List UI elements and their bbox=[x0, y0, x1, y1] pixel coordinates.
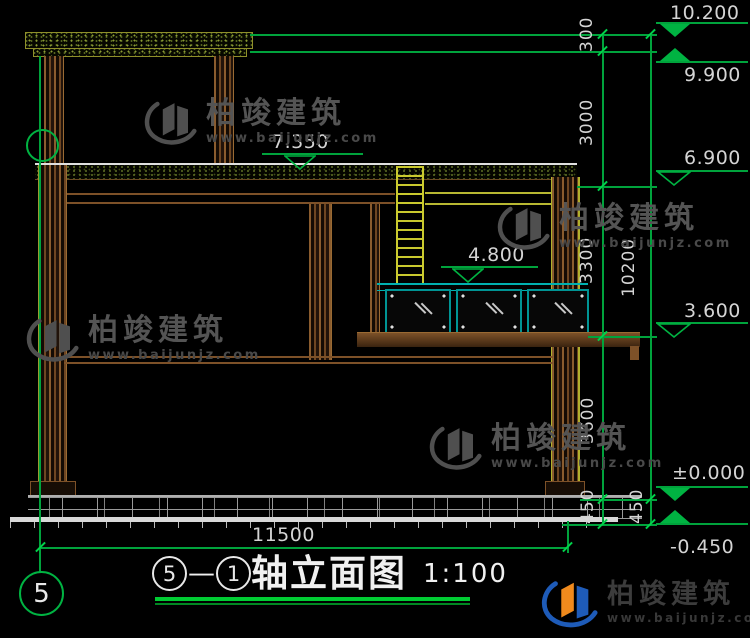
watermark-brand: 柏竣建筑 bbox=[206, 98, 379, 130]
axis-bubble: 5 bbox=[19, 571, 64, 616]
glass-panel bbox=[456, 289, 522, 334]
watermark-logo-icon bbox=[428, 420, 482, 474]
title-axis-end-label: 1 bbox=[227, 562, 240, 586]
title-axis-start-label: 5 bbox=[163, 562, 176, 586]
dim-450-outer: 450 bbox=[627, 488, 647, 524]
watermark-brand: 柏竣建筑 bbox=[559, 203, 732, 235]
elev-10200-line bbox=[656, 22, 748, 24]
elev-9900-line bbox=[656, 61, 748, 63]
roof-beam-line bbox=[64, 193, 395, 195]
axis-bubble-label: 5 bbox=[33, 579, 50, 609]
watermark-logo-icon bbox=[540, 574, 598, 632]
elev-0000-label: ±0.000 bbox=[672, 462, 745, 484]
title-axis-end: 1 bbox=[216, 556, 251, 591]
dim-3000: 3000 bbox=[577, 95, 597, 150]
watermark: 柏竣建筑 www.baijunjz.com bbox=[25, 312, 261, 366]
extension-line bbox=[562, 524, 657, 526]
detail-callout-circle bbox=[26, 129, 59, 162]
watermark-logo-icon bbox=[496, 200, 550, 254]
roof-ladder bbox=[396, 166, 424, 285]
terrace-level-triangle-icon bbox=[284, 155, 316, 170]
watermark-brand: 柏竣建筑 bbox=[491, 423, 664, 455]
elev-10200-marker-icon bbox=[660, 24, 690, 37]
title-axis-start: 5 bbox=[152, 556, 187, 591]
watermark: 柏竣建筑 www.baijunjz.com bbox=[428, 420, 664, 474]
elev-9900-label: 9.900 bbox=[684, 64, 741, 86]
watermark-url: www.baijunjz.com bbox=[206, 131, 379, 146]
dim-450-inner: 450 bbox=[578, 488, 598, 524]
watermark-logo-icon bbox=[143, 95, 197, 149]
watermark-url: www.baijunjz.com bbox=[491, 456, 664, 471]
drawing-title: 5 — 1 轴立面图 1:100 bbox=[152, 555, 508, 592]
watermark: 柏竣建筑 www.baijunjz.com bbox=[143, 95, 379, 149]
roof-beam-right bbox=[425, 192, 553, 194]
elev-9900-marker-icon bbox=[660, 48, 690, 61]
balcony-slab-edge bbox=[630, 346, 639, 360]
watermark-url: www.baijunjz.com bbox=[607, 611, 750, 625]
glass-panel bbox=[527, 289, 589, 334]
watermark: 柏竣建筑 www.baijunjz.com bbox=[496, 200, 732, 254]
balcony-level-triangle-icon bbox=[452, 268, 484, 283]
watermark-brand: 柏竣建筑 bbox=[607, 581, 750, 609]
balcony-wall-edge bbox=[370, 204, 380, 332]
elev-3600-label: 3.600 bbox=[684, 300, 741, 322]
elev-0000-marker-icon bbox=[660, 488, 690, 501]
title-underline-thick bbox=[155, 597, 470, 601]
elevation-drawing: 5 7.350 4.800 300 3000 3300 3600 450 450… bbox=[0, 0, 750, 638]
title-name: 轴立面图 bbox=[251, 555, 407, 592]
mid-column bbox=[309, 204, 332, 360]
title-underline-thin bbox=[155, 603, 470, 605]
elev-0000-line bbox=[656, 486, 748, 488]
elev-3600-marker-icon bbox=[657, 323, 691, 338]
elev-10200-label: 10.200 bbox=[670, 2, 739, 24]
parapet-slab bbox=[25, 32, 253, 49]
elev-neg450-line bbox=[656, 523, 748, 525]
elev-6900-label: 6.900 bbox=[684, 147, 741, 169]
title-scale: 1:100 bbox=[423, 559, 508, 589]
stone-plinth bbox=[28, 497, 642, 519]
roof-beam-line bbox=[64, 202, 395, 204]
elev-neg450-label: -0.450 bbox=[670, 536, 734, 558]
watermark-logo-icon bbox=[25, 312, 79, 366]
elev-6900-marker-icon bbox=[657, 171, 691, 186]
elev-neg450-marker-icon bbox=[660, 510, 690, 523]
glass-panel bbox=[385, 289, 451, 334]
watermark-brand: 柏竣建筑 bbox=[88, 315, 261, 347]
dim-11500: 11500 bbox=[252, 524, 315, 546]
watermark-url: www.baijunjz.com bbox=[559, 236, 732, 251]
title-separator: — bbox=[188, 560, 215, 587]
watermark-url: www.baijunjz.com bbox=[88, 348, 261, 363]
watermark-logo-footer: 柏竣建筑 www.baijunjz.com bbox=[540, 574, 750, 632]
extension-line bbox=[577, 186, 657, 188]
bottom-dim-line bbox=[39, 547, 568, 549]
dim-300: 300 bbox=[577, 14, 597, 54]
